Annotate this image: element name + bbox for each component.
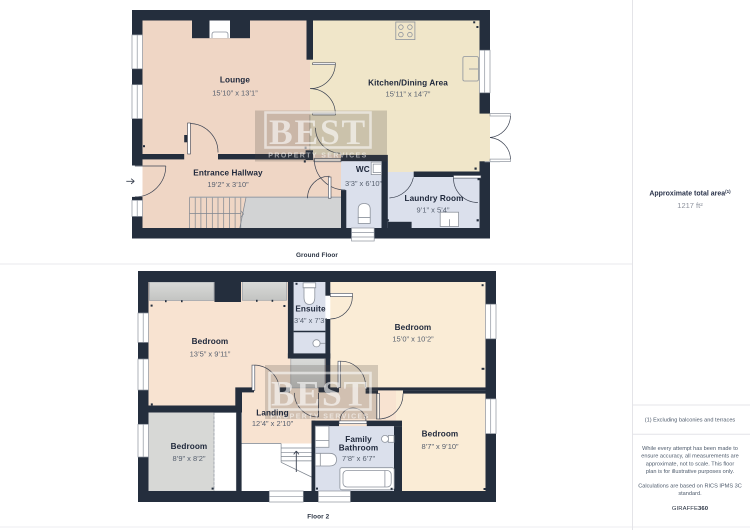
svg-text:Landing: Landing — [256, 409, 289, 418]
svg-text:7’8” x 6’7”: 7’8” x 6’7” — [342, 454, 375, 463]
svg-text:3’3” x 6’10”: 3’3” x 6’10” — [345, 179, 383, 188]
svg-text:Laundry Room: Laundry Room — [405, 194, 464, 203]
svg-text:1217 ft²: 1217 ft² — [677, 201, 703, 210]
svg-text:3’4” x 7’3”: 3’4” x 7’3” — [294, 316, 327, 325]
svg-text:19’2” x 3’10”: 19’2” x 3’10” — [207, 180, 249, 189]
svg-text:Bedroom: Bedroom — [395, 323, 432, 332]
svg-text:Bedroom: Bedroom — [171, 442, 208, 451]
svg-text:9’1” x 5’4”: 9’1” x 5’4” — [417, 206, 450, 215]
svg-text:GIRAFFE360: GIRAFFE360 — [672, 506, 709, 512]
svg-text:Kitchen/Dining Area: Kitchen/Dining Area — [368, 79, 448, 88]
svg-text:BEST: BEST — [271, 374, 369, 414]
svg-text:8’9” x 8’2”: 8’9” x 8’2” — [173, 454, 206, 463]
svg-text:Calculations are based on RICS: Calculations are based on RICS IPMS 3C — [638, 484, 742, 490]
svg-text:15’0” x 10’2”: 15’0” x 10’2” — [392, 335, 434, 344]
svg-text:(1) Excluding balconies and te: (1) Excluding balconies and terraces — [645, 418, 736, 424]
svg-text:13’5” x 9’11”: 13’5” x 9’11” — [190, 350, 231, 359]
svg-text:Bathroom: Bathroom — [339, 444, 378, 453]
svg-text:approximate, not to scale. Thi: approximate, not to scale. This floor — [646, 461, 735, 467]
svg-text:WC: WC — [356, 165, 370, 174]
svg-text:Approximate total area(1): Approximate total area(1) — [649, 189, 731, 198]
svg-text:15’10” x 13’1”: 15’10” x 13’1” — [212, 89, 258, 98]
svg-text:PROPERTY SERVICES: PROPERTY SERVICES — [268, 153, 367, 160]
svg-text:12’4” x 2’10”: 12’4” x 2’10” — [252, 419, 294, 428]
svg-text:Entrance Hallway: Entrance Hallway — [193, 169, 263, 178]
svg-text:While every attempt has been m: While every attempt has been made to — [642, 446, 738, 452]
svg-text:standard.: standard. — [678, 491, 702, 497]
svg-text:8’7” x 9’10”: 8’7” x 9’10” — [421, 442, 459, 451]
svg-text:BEST: BEST — [269, 112, 367, 152]
svg-text:Ground Floor: Ground Floor — [296, 252, 338, 259]
svg-text:ensure accuracy, all measureme: ensure accuracy, all measurements are — [641, 454, 739, 460]
svg-text:Bedroom: Bedroom — [422, 430, 459, 439]
svg-text:15’11” x 14’7”: 15’11” x 14’7” — [386, 90, 431, 99]
svg-text:Floor 2: Floor 2 — [307, 514, 329, 521]
svg-text:Ensuite: Ensuite — [295, 305, 326, 314]
svg-text:plan is for illustrative purpo: plan is for illustrative purposes only. — [646, 469, 735, 475]
svg-text:Bedroom: Bedroom — [192, 337, 229, 346]
svg-text:Lounge: Lounge — [220, 76, 251, 85]
